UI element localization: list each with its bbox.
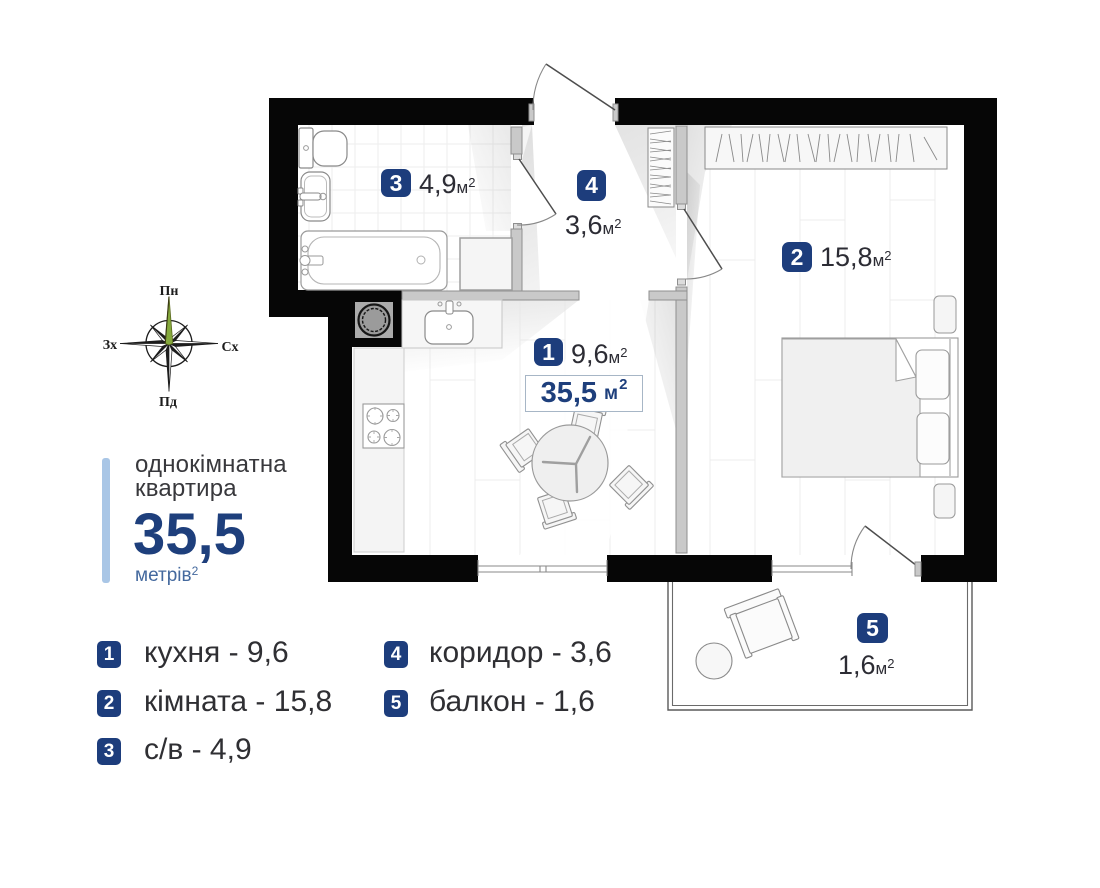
- svg-text:Сх: Сх: [221, 340, 238, 355]
- svg-text:Пд: Пд: [159, 395, 177, 410]
- svg-text:Зх: Зх: [103, 338, 117, 353]
